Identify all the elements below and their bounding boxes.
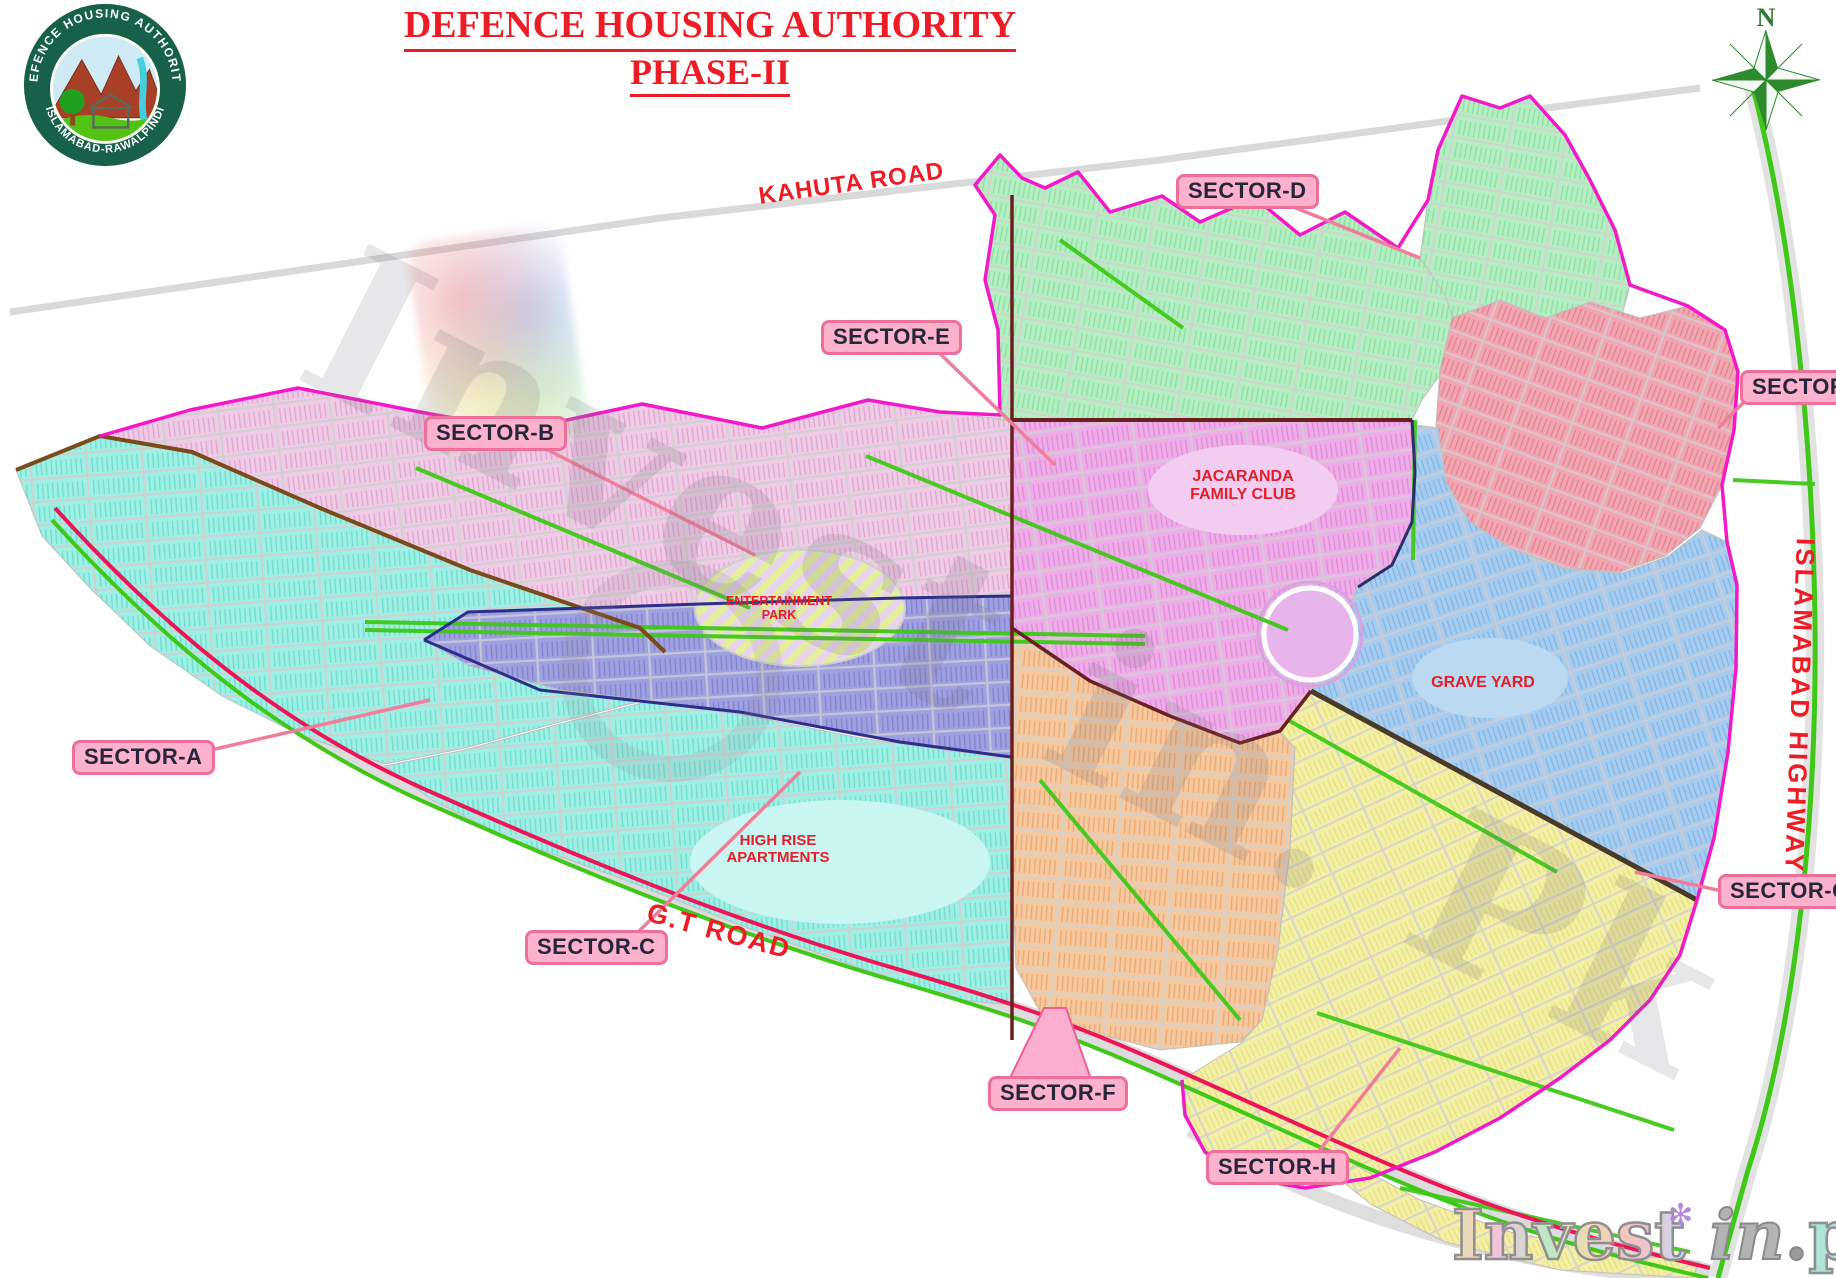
logo-tree-icon bbox=[60, 89, 85, 114]
entertainment-park-label: ENTERTAINMENT PARK bbox=[708, 594, 850, 623]
entertainment-line2: PARK bbox=[708, 608, 850, 622]
brand-invest: Invest bbox=[1452, 1196, 1686, 1276]
compass-north-label: N bbox=[1757, 3, 1776, 32]
sector-f-label: SECTOR-F bbox=[988, 1076, 1128, 1111]
compass-rose: N bbox=[1692, 2, 1836, 137]
high-rise-line1: HIGH RISE bbox=[698, 832, 858, 849]
compass-star-icon bbox=[1712, 30, 1820, 130]
sector-h-label: SECTOR-H bbox=[1206, 1150, 1349, 1185]
title-line1: DEFENCE HOUSING AUTHORITY bbox=[404, 4, 1016, 52]
sector-b-label: SECTOR-B bbox=[424, 416, 567, 451]
sector-c-label: SECTOR-C bbox=[525, 930, 668, 965]
investin-pk-brand: Invest in.pk bbox=[1452, 1196, 1836, 1276]
dha-phase2-map-page: Invest in. Pk DEFENCE HOUSING AUTHORITY … bbox=[0, 0, 1836, 1278]
brand-flower-icon: ✻ bbox=[1668, 1198, 1693, 1233]
sector-e-label: SECTOR-E bbox=[821, 320, 962, 355]
jacaranda-line1: JACARANDA bbox=[1158, 468, 1328, 486]
dha-logo: DEFENCE HOUSING AUTHORITY ISLAMABAD-RAWA… bbox=[22, 2, 188, 168]
title-line2: PHASE-II bbox=[630, 52, 790, 97]
dha-phase2-map bbox=[0, 0, 1836, 1278]
grave-yard-label: GRAVE YARD bbox=[1408, 674, 1558, 692]
jacaranda-family-club-label: JACARANDA FAMILY CLUB bbox=[1158, 468, 1328, 505]
high-rise-line2: APARTMENTS bbox=[698, 849, 858, 866]
sector-j-label: SECTOR-J bbox=[1740, 370, 1836, 405]
sector-d-label: SECTOR-D bbox=[1176, 174, 1319, 209]
jacaranda-line2: FAMILY CLUB bbox=[1158, 486, 1328, 504]
brand-in: in bbox=[1686, 1196, 1785, 1276]
page-title: DEFENCE HOUSING AUTHORITY PHASE-II bbox=[370, 4, 1050, 97]
brand-pk: pk bbox=[1808, 1196, 1836, 1276]
sector-g-label: SECTOR-G bbox=[1718, 874, 1836, 909]
high-rise-apartments-label: HIGH RISE APARTMENTS bbox=[698, 832, 858, 867]
roundabout bbox=[1264, 588, 1356, 680]
brand-dot: . bbox=[1785, 1196, 1809, 1276]
sector-a-label: SECTOR-A bbox=[72, 740, 215, 775]
entertainment-line1: ENTERTAINMENT bbox=[708, 594, 850, 608]
